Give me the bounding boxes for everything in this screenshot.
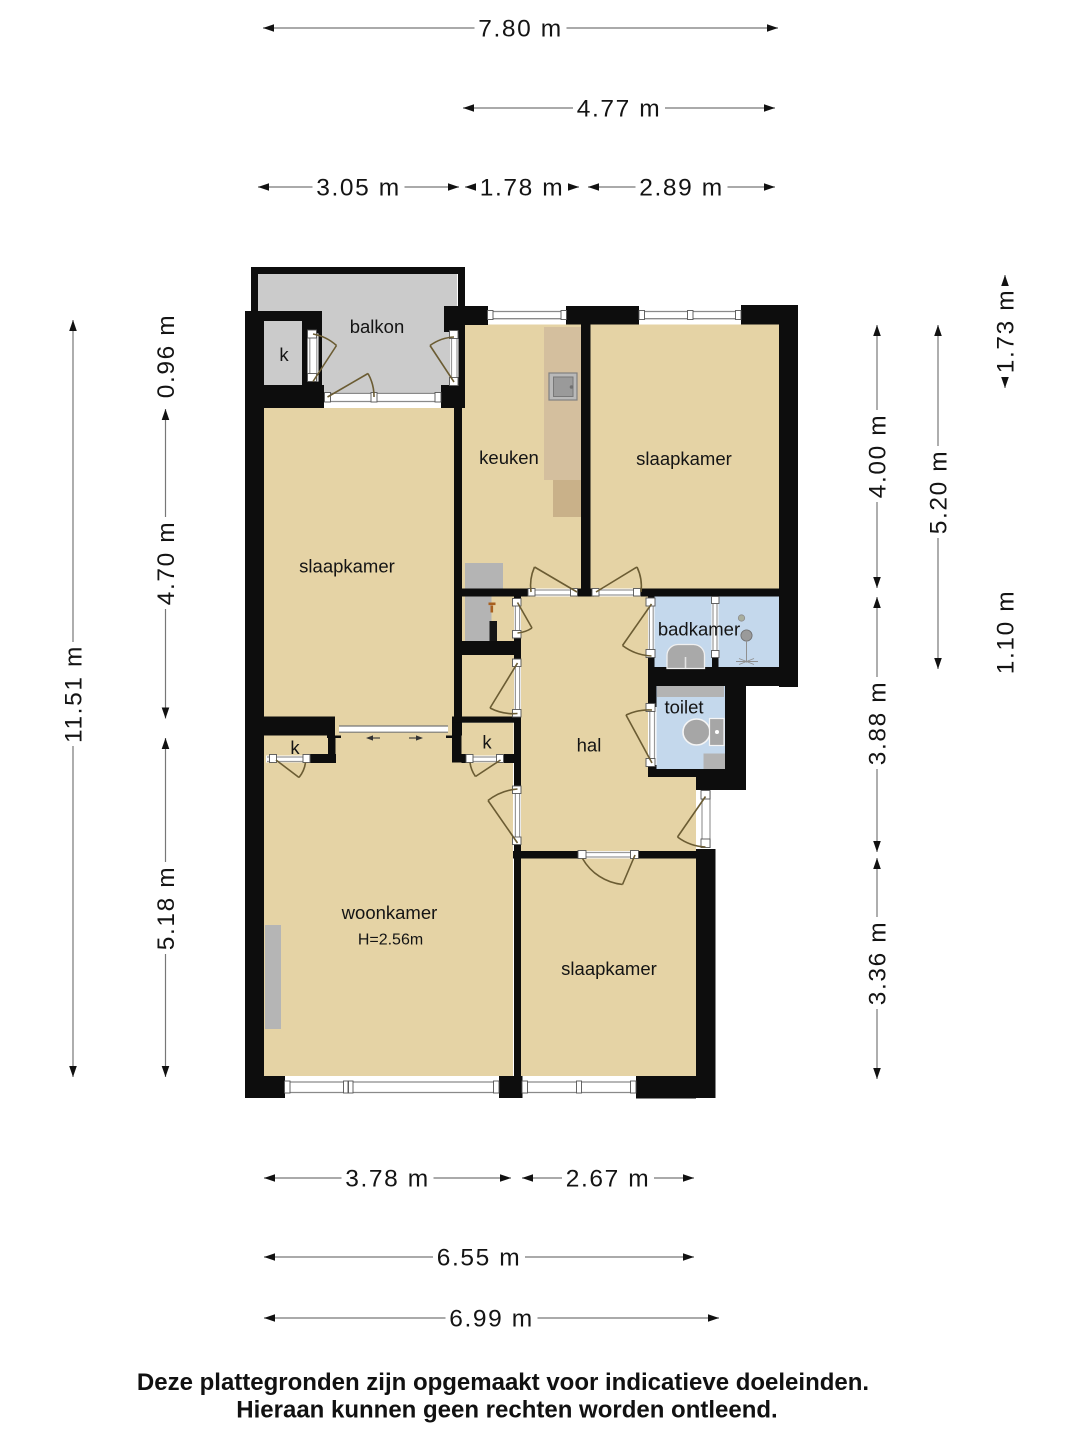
svg-text:4.00 m: 4.00 m bbox=[865, 414, 892, 499]
svg-text:balkon: balkon bbox=[350, 316, 405, 337]
svg-text:keuken: keuken bbox=[479, 447, 539, 468]
svg-text:woonkamer: woonkamer bbox=[341, 902, 438, 923]
svg-text:7.80 m: 7.80 m bbox=[478, 16, 563, 43]
svg-text:0.96 m: 0.96 m bbox=[153, 314, 180, 399]
svg-text:1.78 m: 1.78 m bbox=[480, 175, 565, 202]
svg-text:hal: hal bbox=[577, 735, 602, 756]
svg-text:3.78 m: 3.78 m bbox=[345, 1166, 430, 1193]
svg-text:3.05 m: 3.05 m bbox=[316, 175, 401, 202]
svg-text:badkamer: badkamer bbox=[658, 619, 740, 640]
svg-text:3.36 m: 3.36 m bbox=[865, 921, 892, 1006]
svg-text:1.73 m: 1.73 m bbox=[993, 289, 1020, 374]
svg-text:slaapkamer: slaapkamer bbox=[636, 448, 732, 469]
svg-text:5.20 m: 5.20 m bbox=[926, 450, 953, 535]
svg-text:6.55 m: 6.55 m bbox=[437, 1245, 522, 1272]
svg-text:2.67 m: 2.67 m bbox=[566, 1166, 651, 1193]
svg-text:slaapkamer: slaapkamer bbox=[299, 556, 395, 577]
svg-text:k: k bbox=[482, 732, 492, 753]
svg-text:4.77 m: 4.77 m bbox=[577, 96, 662, 123]
svg-text:4.70 m: 4.70 m bbox=[153, 521, 180, 606]
svg-text:11.51 m: 11.51 m bbox=[61, 645, 88, 743]
svg-text:1.10 m: 1.10 m bbox=[993, 590, 1020, 675]
svg-text:3.88 m: 3.88 m bbox=[865, 681, 892, 766]
svg-text:H=2.56m: H=2.56m bbox=[358, 932, 423, 949]
svg-text:k: k bbox=[290, 737, 300, 758]
svg-text:Deze plattegronden zijn opgema: Deze plattegronden zijn opgemaakt voor i… bbox=[137, 1369, 869, 1396]
svg-text:Hieraan kunnen geen rechten wo: Hieraan kunnen geen rechten worden ontle… bbox=[236, 1397, 777, 1424]
svg-text:5.18 m: 5.18 m bbox=[153, 866, 180, 951]
svg-text:toilet: toilet bbox=[664, 697, 703, 718]
svg-text:slaapkamer: slaapkamer bbox=[561, 958, 657, 979]
svg-text:2.89 m: 2.89 m bbox=[639, 175, 724, 202]
svg-text:6.99 m: 6.99 m bbox=[449, 1306, 534, 1333]
svg-text:k: k bbox=[279, 344, 289, 365]
